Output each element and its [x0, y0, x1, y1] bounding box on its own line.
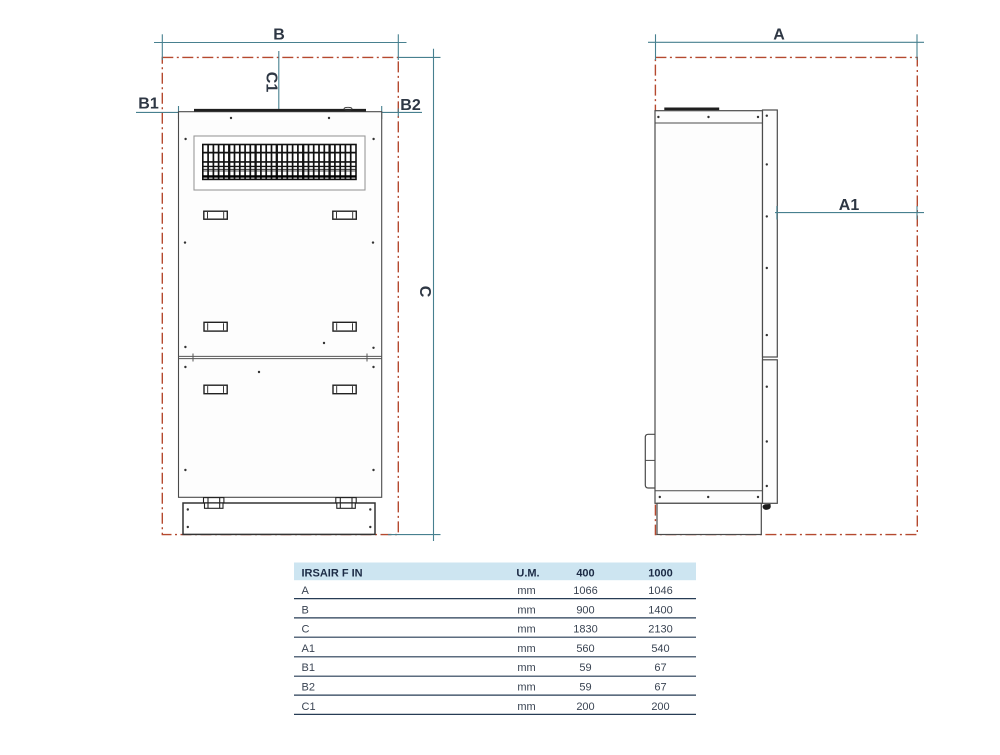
svg-text:A: A	[773, 27, 785, 44]
svg-text:mm: mm	[517, 643, 535, 655]
svg-text:1830: 1830	[573, 624, 597, 636]
svg-text:B1: B1	[302, 662, 315, 674]
svg-text:200: 200	[576, 701, 594, 713]
svg-text:900: 900	[576, 604, 594, 616]
svg-text:1400: 1400	[648, 604, 672, 616]
svg-text:560: 560	[576, 643, 594, 655]
svg-text:B: B	[302, 604, 309, 616]
svg-text:mm: mm	[517, 624, 535, 636]
svg-text:200: 200	[651, 701, 669, 713]
svg-text:B2: B2	[400, 97, 421, 114]
svg-text:540: 540	[651, 643, 669, 655]
svg-text:mm: mm	[517, 604, 535, 616]
svg-text:A1: A1	[839, 197, 860, 214]
svg-text:mm: mm	[517, 585, 535, 597]
svg-text:mm: mm	[517, 701, 535, 713]
svg-text:B: B	[273, 27, 285, 44]
svg-text:IRSAIR F IN: IRSAIR F IN	[302, 567, 363, 579]
svg-text:mm: mm	[517, 682, 535, 694]
svg-text:400: 400	[576, 567, 594, 579]
svg-text:A1: A1	[302, 643, 315, 655]
svg-text:67: 67	[654, 662, 666, 674]
svg-text:1066: 1066	[573, 585, 597, 597]
svg-text:mm: mm	[517, 662, 535, 674]
svg-text:2130: 2130	[648, 624, 672, 636]
svg-text:1000: 1000	[648, 567, 672, 579]
svg-text:59: 59	[579, 662, 591, 674]
svg-text:C1: C1	[262, 72, 279, 93]
svg-text:A: A	[302, 585, 310, 597]
svg-text:C1: C1	[302, 701, 316, 713]
svg-text:C: C	[302, 624, 310, 636]
svg-text:C: C	[416, 286, 433, 298]
svg-text:B1: B1	[138, 96, 159, 113]
svg-text:B2: B2	[302, 682, 315, 694]
svg-text:59: 59	[579, 682, 591, 694]
svg-text:67: 67	[654, 682, 666, 694]
svg-text:U.M.: U.M.	[516, 567, 539, 579]
svg-text:1046: 1046	[648, 585, 672, 597]
